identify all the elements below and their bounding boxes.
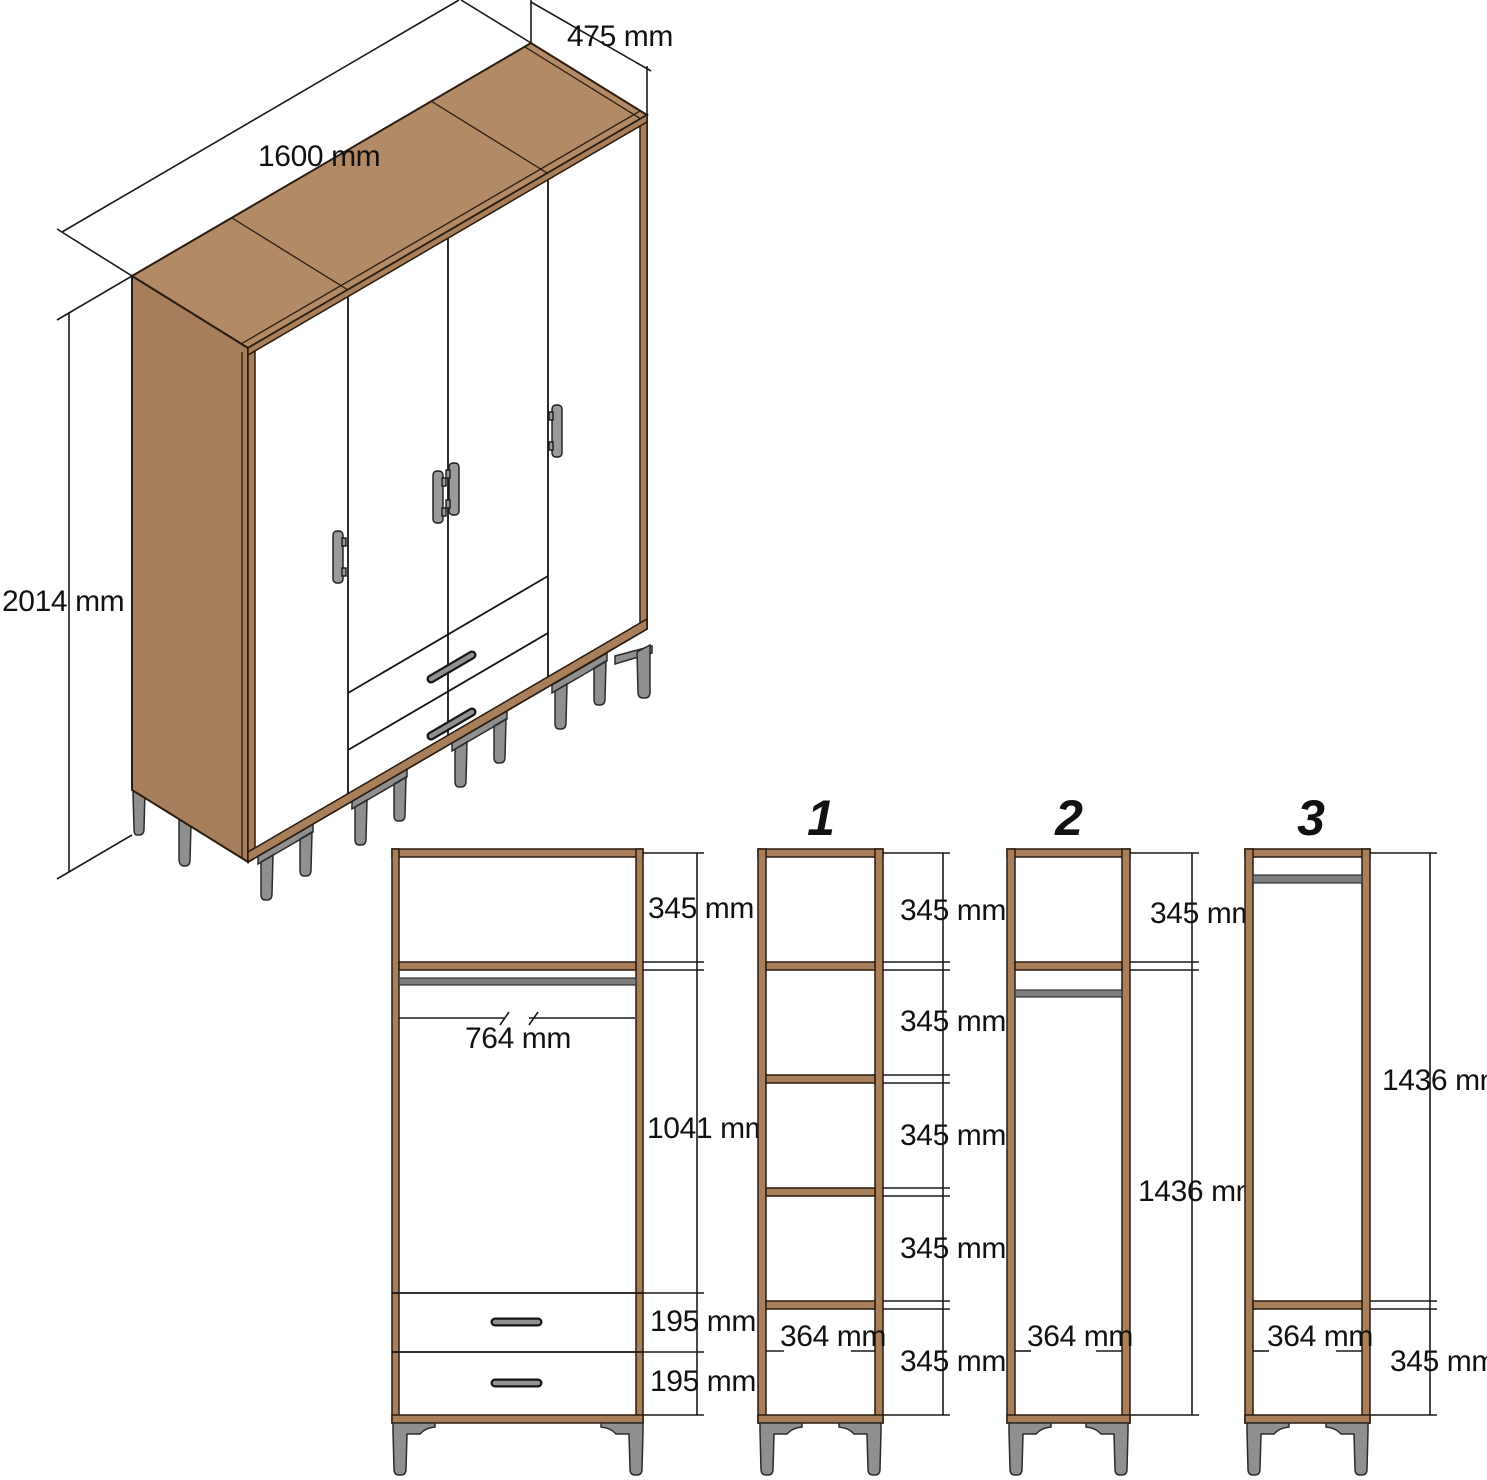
main-left-panel (392, 849, 399, 1423)
leg-right (637, 645, 650, 698)
option2-tall-label: 1436 mm (1138, 1175, 1260, 1208)
left-side-panel (132, 276, 248, 862)
main-bottom-panel (392, 1415, 643, 1423)
option1-shelf-4 (766, 1301, 875, 1309)
option1-shelf-1 (766, 962, 875, 970)
leg-mid-left (179, 820, 191, 866)
option3-shelf (1253, 1301, 1362, 1309)
front-right-strip (640, 122, 647, 623)
option1-bottom-panel (758, 1415, 883, 1423)
option3-top-panel (1245, 849, 1370, 857)
main-drawer2-label: 195 mm (650, 1365, 756, 1398)
main-interior (392, 849, 643, 1423)
main-top-shelf-label: 345 mm (648, 892, 754, 925)
option1-width-label: 364 mm (780, 1320, 886, 1353)
option1-top-panel (758, 849, 883, 857)
option3-width-label: 364 mm (1267, 1320, 1373, 1353)
option3-left-panel (1245, 849, 1253, 1423)
option2-number: 2 (1054, 790, 1083, 846)
option2-bottom-panel (1007, 1415, 1130, 1423)
option1-c3-label: 345 mm (900, 1119, 1006, 1152)
iso-height-label: 2014 mm (2, 585, 124, 618)
option1-shelf-2 (766, 1075, 875, 1083)
main-top-shelf (399, 962, 636, 970)
front-left-strip (248, 351, 255, 852)
option2-width-label: 364 mm (1027, 1320, 1133, 1353)
main-top-panel (392, 849, 643, 857)
option2-shelf (1015, 962, 1122, 970)
option3-tall-label: 1436 mm (1382, 1064, 1487, 1097)
option3-bottom-panel (1245, 1415, 1370, 1423)
option1-left-panel (758, 849, 766, 1423)
option1-c2-label: 345 mm (900, 1005, 1006, 1038)
option2-hanging-rail (1015, 990, 1122, 997)
option3-hanging-rail (1253, 875, 1362, 883)
option3-number: 3 (1297, 790, 1325, 846)
option2-left-panel (1007, 849, 1015, 1423)
wardrobe-dimension-diagram: 1600 mm 475 mm 2014 mm (0, 0, 1487, 1480)
option2-top-label: 345 mm (1150, 897, 1256, 930)
iso-depth-label: 475 mm (567, 20, 673, 53)
option2-top-panel (1007, 849, 1130, 857)
diagram-canvas: 1600 mm 475 mm 2014 mm (0, 0, 1487, 1480)
option1-c4-label: 345 mm (900, 1232, 1006, 1265)
main-rail-width-label: 764 mm (465, 1022, 571, 1055)
option1-shelf-3 (766, 1188, 875, 1196)
main-right-panel (636, 849, 643, 1423)
main-hanging-rail (399, 978, 636, 985)
option1-c5-label: 345 mm (900, 1345, 1006, 1378)
option1-c1-label: 345 mm (900, 894, 1006, 927)
main-drawer1-label: 195 mm (650, 1305, 756, 1338)
iso-width-label: 1600 mm (258, 140, 380, 173)
option3-bottom-label: 345 mm (1390, 1345, 1487, 1378)
option1-number: 1 (807, 790, 835, 846)
main-hanging-label: 1041 mm (647, 1112, 769, 1145)
